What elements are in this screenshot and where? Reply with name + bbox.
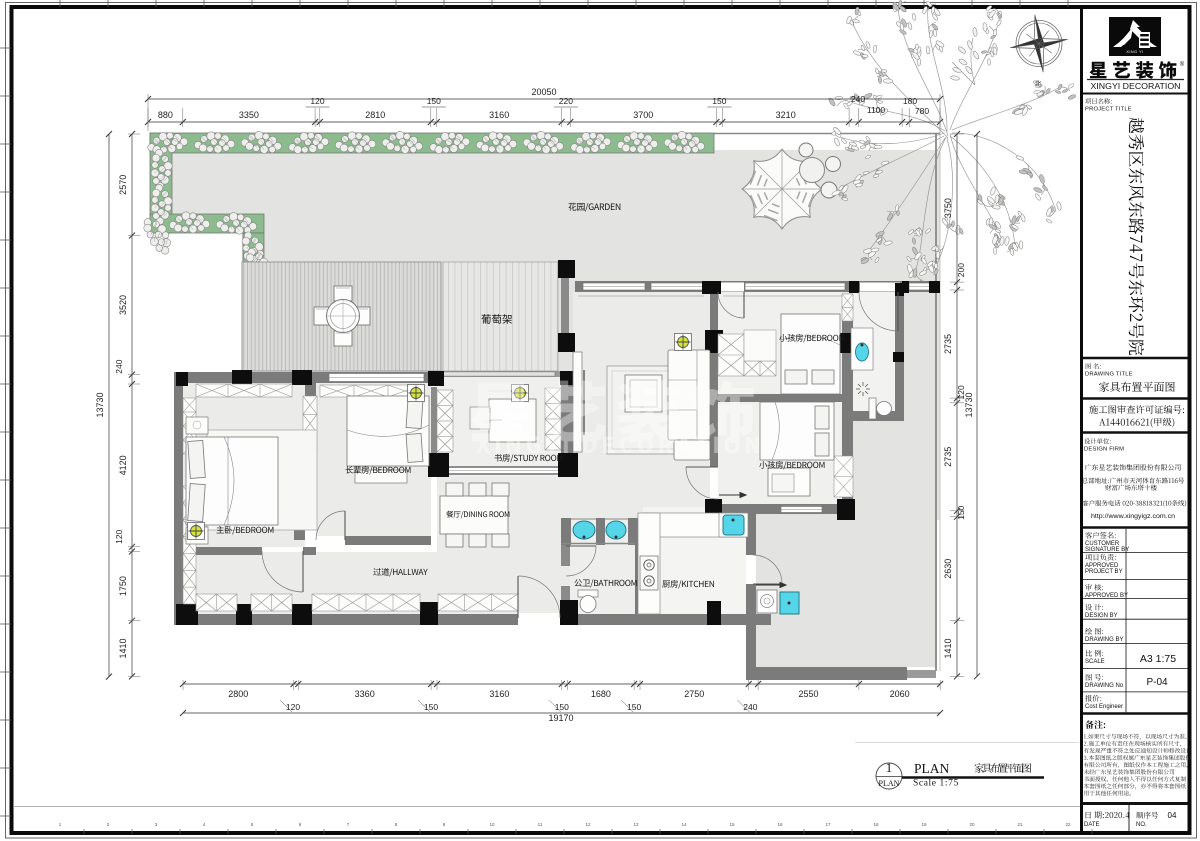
svg-text:120: 120 xyxy=(114,529,124,543)
svg-text:Scale 1:75: Scale 1:75 xyxy=(913,779,959,789)
svg-text:22: 22 xyxy=(1065,822,1071,827)
svg-text:2735: 2735 xyxy=(943,334,953,354)
svg-text:4120: 4120 xyxy=(118,455,128,475)
svg-text:PROJECT BY: PROJECT BY xyxy=(1085,569,1123,575)
svg-text:150: 150 xyxy=(956,505,966,519)
svg-text:150: 150 xyxy=(627,702,641,712)
svg-text:DESIGN BY: DESIGN BY xyxy=(1085,613,1118,619)
svg-text:1680: 1680 xyxy=(591,689,611,699)
svg-text:20050: 20050 xyxy=(531,87,556,97)
svg-text:XING YI: XING YI xyxy=(1126,50,1143,54)
svg-text:PLAN: PLAN xyxy=(879,779,900,788)
svg-text:SIGNATURE BY: SIGNATURE BY xyxy=(1085,547,1129,553)
svg-text:2570: 2570 xyxy=(118,175,128,195)
svg-text:3750: 3750 xyxy=(943,198,953,218)
svg-text:1: 1 xyxy=(886,760,893,775)
svg-text:A3 1:75: A3 1:75 xyxy=(1140,653,1176,665)
svg-text:DRAWING No: DRAWING No xyxy=(1085,683,1124,689)
svg-text:04: 04 xyxy=(1168,811,1177,820)
svg-text:200: 200 xyxy=(956,263,966,277)
svg-text:150: 150 xyxy=(555,702,569,712)
svg-text:10: 10 xyxy=(489,822,495,827)
svg-text:120: 120 xyxy=(310,96,324,106)
svg-text:240: 240 xyxy=(114,359,124,373)
svg-text:16: 16 xyxy=(777,822,783,827)
svg-text:2060: 2060 xyxy=(890,689,910,699)
svg-text:12: 12 xyxy=(585,822,591,827)
svg-text:P-04: P-04 xyxy=(1146,677,1168,688)
svg-text:20: 20 xyxy=(969,822,975,827)
svg-text:14: 14 xyxy=(681,822,687,827)
svg-text:2630: 2630 xyxy=(943,559,953,579)
svg-text:3360: 3360 xyxy=(355,689,375,699)
svg-text:780: 780 xyxy=(915,106,929,116)
svg-text:CUSTOMER: CUSTOMER xyxy=(1085,541,1120,547)
svg-text:2810: 2810 xyxy=(365,110,385,120)
svg-text:19170: 19170 xyxy=(548,713,573,723)
svg-text:APPROVED BY: APPROVED BY xyxy=(1085,593,1128,599)
svg-text:APPROVED: APPROVED xyxy=(1085,563,1119,569)
svg-text:17: 17 xyxy=(825,822,831,827)
svg-text:880: 880 xyxy=(158,110,173,120)
svg-text:DESIGN FIRM: DESIGN FIRM xyxy=(1084,447,1124,453)
svg-text:1410: 1410 xyxy=(118,638,128,658)
svg-text:3160: 3160 xyxy=(489,110,509,120)
svg-text:240: 240 xyxy=(743,702,757,712)
svg-text:3160: 3160 xyxy=(489,689,509,699)
svg-text:13: 13 xyxy=(633,822,639,827)
svg-text:150: 150 xyxy=(427,96,441,106)
svg-text:2800: 2800 xyxy=(228,689,248,699)
svg-text:SCALE: SCALE xyxy=(1085,659,1105,665)
svg-text:DATE: DATE xyxy=(1084,822,1100,828)
svg-text:DRAWING TITLE: DRAWING TITLE xyxy=(1085,372,1133,378)
svg-text:3700: 3700 xyxy=(633,110,653,120)
svg-text:220: 220 xyxy=(559,96,573,106)
svg-text:NO.: NO. xyxy=(1136,822,1147,828)
svg-text:15: 15 xyxy=(729,822,735,827)
svg-text:PLAN: PLAN xyxy=(914,761,950,776)
svg-text:2750: 2750 xyxy=(684,689,704,699)
svg-text:150: 150 xyxy=(424,702,438,712)
svg-text:®: ® xyxy=(1180,61,1185,68)
svg-text:1410: 1410 xyxy=(943,638,953,658)
svg-text:11: 11 xyxy=(538,822,543,827)
svg-text:3350: 3350 xyxy=(239,110,259,120)
svg-text:3210: 3210 xyxy=(776,110,796,120)
svg-text:180: 180 xyxy=(903,96,917,106)
svg-text:PROJECT TITLE: PROJECT TITLE xyxy=(1085,107,1132,113)
svg-text:19: 19 xyxy=(921,822,927,827)
svg-text:2550: 2550 xyxy=(798,689,818,699)
svg-text:Cost Engineer: Cost Engineer xyxy=(1085,704,1123,710)
svg-text:2735: 2735 xyxy=(943,447,953,467)
svg-text:http://www.xingyigz.com.cn: http://www.xingyigz.com.cn xyxy=(1091,513,1175,520)
svg-text:DRAWING BY: DRAWING BY xyxy=(1085,637,1123,643)
svg-text:XINGYI DECORATION: XINGYI DECORATION xyxy=(1091,81,1181,91)
svg-text:3520: 3520 xyxy=(118,295,128,315)
svg-text:21: 21 xyxy=(1017,822,1023,827)
svg-text:240: 240 xyxy=(851,94,865,104)
svg-text:13730: 13730 xyxy=(964,392,974,417)
svg-text:13730: 13730 xyxy=(95,392,105,417)
svg-text:18: 18 xyxy=(873,822,879,827)
svg-text:1100: 1100 xyxy=(867,105,886,115)
svg-text:120: 120 xyxy=(286,702,300,712)
svg-text:1750: 1750 xyxy=(118,576,128,596)
svg-text:150: 150 xyxy=(712,96,726,106)
